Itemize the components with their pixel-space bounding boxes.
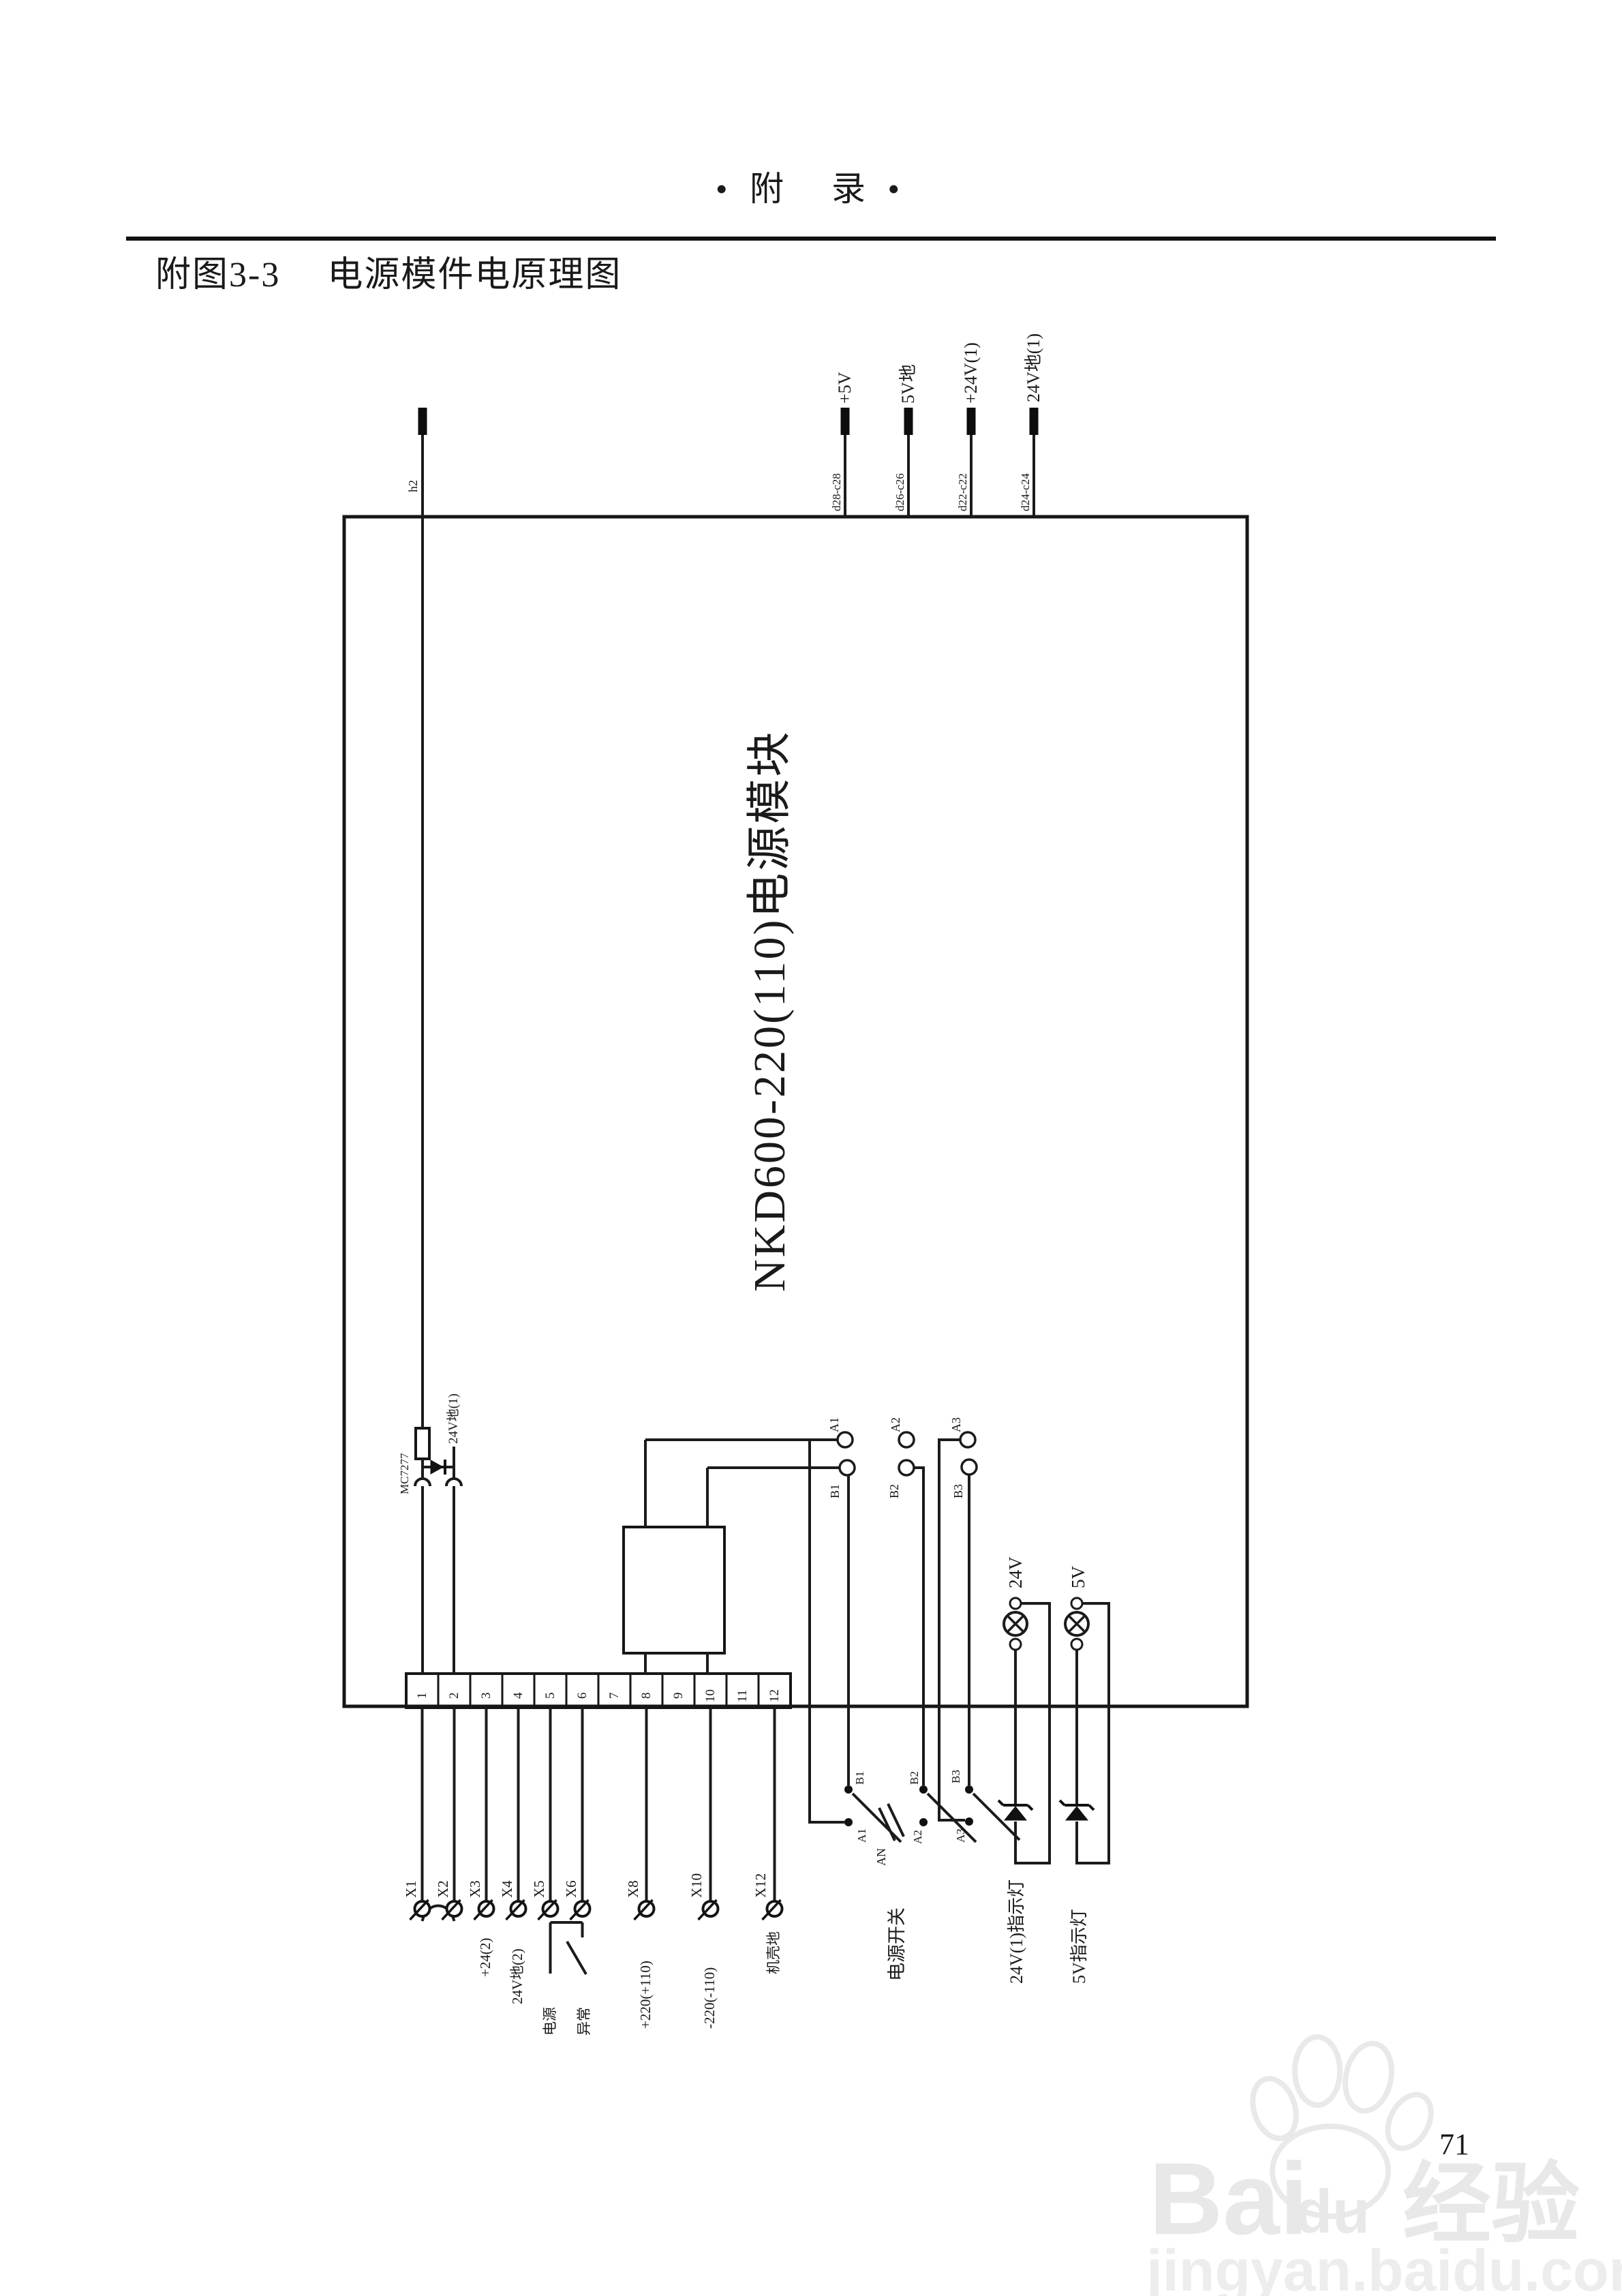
terminal-number: 2 bbox=[448, 1693, 461, 1700]
pin-label-24vgnd: 24V地(1) bbox=[1025, 333, 1043, 402]
x-terminal-label: X4 bbox=[500, 1880, 515, 1898]
header-rule bbox=[126, 237, 1496, 241]
x-terminal-label: X12 bbox=[754, 1873, 768, 1898]
terminal-number: 8 bbox=[640, 1693, 653, 1700]
pin-id-3: d22-c22 bbox=[957, 473, 968, 511]
switch-contact-b1: B1 bbox=[854, 1771, 866, 1785]
io-label-x8: +220(+110) bbox=[639, 1961, 653, 2029]
switch-contact-b2: B2 bbox=[908, 1771, 920, 1785]
figure-title: 附图3-3 电源模件电原理图 bbox=[155, 258, 622, 293]
terminal-number: 9 bbox=[672, 1693, 685, 1700]
terminal-number: 1 bbox=[416, 1693, 429, 1700]
watermark-brand-paw-text: du bbox=[1295, 2181, 1370, 2243]
socket-label-b1: B1 bbox=[829, 1484, 841, 1498]
x-terminal-label: X5 bbox=[532, 1880, 547, 1898]
pin-id-4: d24-c24 bbox=[1020, 473, 1031, 511]
socket-label-b2: B2 bbox=[888, 1484, 900, 1498]
pin-label-plus5v: +5V bbox=[836, 372, 854, 404]
scanned-document-page: • 附 录 • 附图3-3 电源模件电原理图 NKD600-220(110)电源… bbox=[0, 0, 1622, 2296]
socket-label-a3: A3 bbox=[950, 1417, 962, 1432]
pin-label-5vgnd: 5V地 bbox=[900, 364, 917, 404]
io-label-fault-a: 电源 bbox=[543, 2007, 557, 2036]
socket-label-a1: A1 bbox=[828, 1417, 840, 1432]
page-header: • 附 录 • bbox=[0, 172, 1622, 206]
switch-contact-a2: A2 bbox=[912, 1830, 923, 1844]
module-name-label: NKD600-220(110)电源模块 bbox=[748, 730, 793, 1292]
pin-id-1: d28-c28 bbox=[831, 473, 842, 511]
x-terminal-label: X8 bbox=[626, 1880, 641, 1898]
x-terminal-circles bbox=[410, 1900, 782, 1920]
io-label-fault-b: 异常 bbox=[577, 2007, 592, 2036]
pin-id-2: d26-c26 bbox=[894, 473, 906, 511]
diode-symbols bbox=[431, 1460, 1094, 1820]
schematic-drawing bbox=[0, 0, 1622, 2296]
x-terminal-label: X3 bbox=[468, 1880, 483, 1898]
indicator-lamps bbox=[1004, 1598, 1088, 1650]
lamp-caption-24v: 24V(1)指示灯 bbox=[1008, 1879, 1026, 1984]
switch-contact-a3: A3 bbox=[955, 1828, 966, 1843]
io-label-x4: 24V地(2) bbox=[510, 1948, 525, 2004]
regulator-net-label: 24V地(1) bbox=[447, 1393, 460, 1444]
terminal-number: 4 bbox=[512, 1693, 525, 1700]
terminal-number: 7 bbox=[608, 1693, 621, 1700]
x-terminal-label: X1 bbox=[404, 1880, 418, 1898]
power-switch-label: 电源开关 bbox=[888, 1907, 906, 1981]
switch-contact-b3: B3 bbox=[950, 1770, 962, 1783]
watermark-brand-latin: Bai bbox=[1149, 2147, 1308, 2250]
io-label-x12: 机壳地 bbox=[767, 1931, 781, 1974]
watermark-brand-cjk: 经验 bbox=[1403, 2160, 1580, 2248]
terminal-number: 3 bbox=[480, 1693, 493, 1700]
terminal-number: 11 bbox=[736, 1690, 749, 1702]
socket-label-b3: B3 bbox=[952, 1484, 964, 1498]
switch-button-label: AN bbox=[875, 1848, 887, 1866]
terminal-number: 12 bbox=[768, 1689, 781, 1702]
pin-label-plus24v: +24V(1) bbox=[962, 342, 980, 404]
pin-id-h2: h2 bbox=[407, 480, 419, 492]
terminal-number: 6 bbox=[576, 1693, 589, 1700]
x-terminal-label: X10 bbox=[690, 1873, 704, 1898]
lamp-label-5v: 5V bbox=[1069, 1566, 1088, 1588]
x-terminal-label: X2 bbox=[436, 1880, 450, 1898]
terminal-number: 5 bbox=[544, 1693, 557, 1700]
connector-pins bbox=[423, 408, 1034, 435]
io-label-x3: +24(2) bbox=[478, 1938, 493, 1977]
x-terminal-label: X6 bbox=[564, 1880, 579, 1898]
terminal-strip bbox=[406, 1674, 791, 1708]
terminal-number: 10 bbox=[704, 1689, 717, 1702]
switch-contact-a1: A1 bbox=[856, 1828, 868, 1843]
lamp-caption-5v: 5V指示灯 bbox=[1071, 1909, 1088, 1984]
module-outline bbox=[344, 517, 1247, 1706]
regulator-part-label: MC7277 bbox=[399, 1453, 410, 1494]
socket-label-a2: A2 bbox=[889, 1417, 902, 1432]
lamp-label-24v: 24V bbox=[1007, 1557, 1025, 1589]
watermark-url: jingyan.baidu.com bbox=[1146, 2241, 1622, 2296]
io-label-x10: -220(-110) bbox=[703, 1967, 717, 2029]
